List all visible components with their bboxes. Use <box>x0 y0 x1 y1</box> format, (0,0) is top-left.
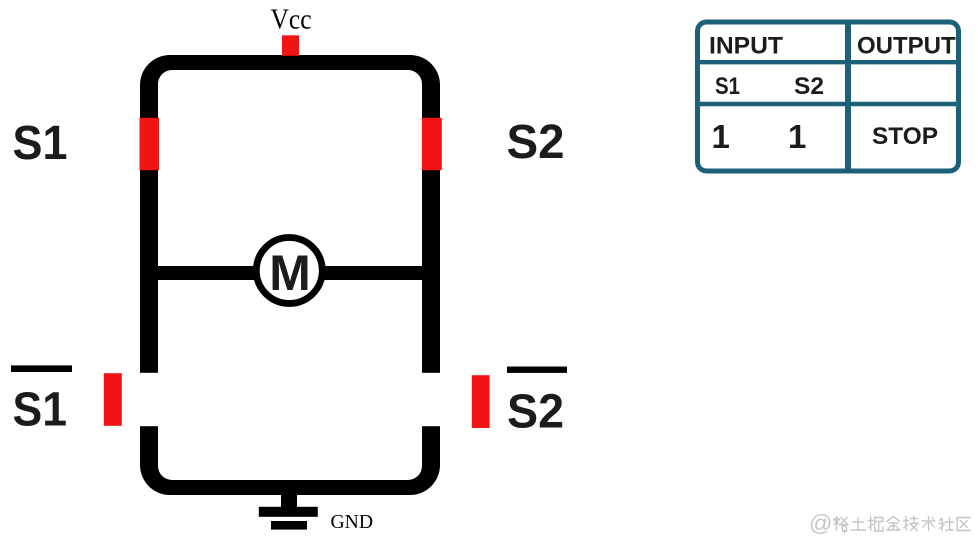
svg-text:S1: S1 <box>13 117 68 170</box>
svg-text:S2: S2 <box>507 385 564 438</box>
svg-text:M: M <box>269 245 311 301</box>
svg-text:Vcc: Vcc <box>271 4 312 36</box>
svg-text:INPUT: INPUT <box>709 32 783 59</box>
svg-text:@: @ <box>809 510 832 536</box>
svg-text:OUTPUT: OUTPUT <box>857 32 956 59</box>
svg-text:S1: S1 <box>13 384 68 437</box>
svg-text:S2: S2 <box>794 73 824 100</box>
svg-text:S2: S2 <box>507 116 565 169</box>
svg-text:1: 1 <box>712 118 730 155</box>
svg-text:STOP: STOP <box>872 123 938 150</box>
svg-text:S1: S1 <box>715 73 740 100</box>
svg-text:1: 1 <box>788 118 806 155</box>
svg-text:GND: GND <box>331 511 374 533</box>
